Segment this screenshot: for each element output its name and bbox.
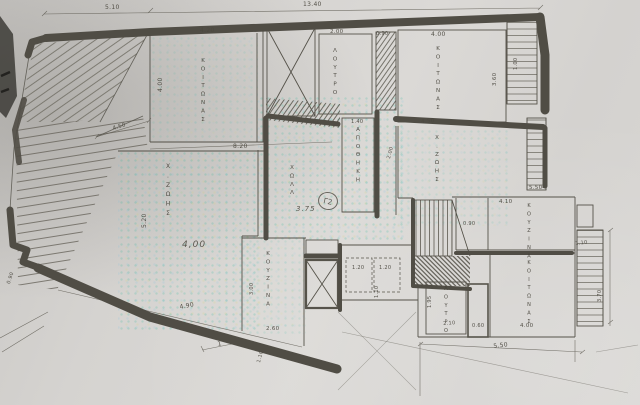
bedroom-1-label: ΚΟΙΤΩΝΑΣ (200, 58, 206, 125)
dimension-label-33: 0.90 (6, 271, 16, 285)
bedroom-2-label: ΚΟΙΤΩΝΑΣ (435, 46, 441, 113)
dimension-label-21: 1.20 (379, 265, 391, 271)
dimension-label-24: 2.10 (443, 320, 456, 327)
kitchen-2-label: ΚΟΥΖΙΝΑ (526, 203, 532, 262)
dimension-label-15: 4,00 (182, 240, 206, 250)
dimension-label-20: 1.20 (352, 265, 364, 271)
dimension-label-32: 5.50 (493, 341, 508, 350)
dimension-label-9: 4.50 (112, 122, 127, 131)
dimension-label-31: 0.90 (463, 221, 475, 227)
bathroom-2-label: ΛΟΥΤΡΟ (443, 286, 449, 336)
dimension-label-6: 4.00 (431, 31, 446, 38)
dimension-label-12: 4.50 (421, 118, 435, 125)
dimension-label-10: 8.20 (233, 143, 248, 150)
storage-label: ΑΠΟΘΗΚΗ (355, 127, 361, 186)
dimension-label-13: 2.00 (386, 146, 395, 159)
dimension-label-23: 1.95 (427, 296, 433, 308)
dimension-label-17: 3.00 (249, 283, 255, 295)
dimension-label-7: 3.60 (492, 73, 498, 86)
dimension-label-30: 3.70 (597, 290, 603, 302)
dimension-label-19: 4.90 (179, 301, 195, 311)
dimension-label-1: 13.40 (303, 1, 322, 8)
dimension-label-35: 1 (217, 340, 222, 348)
dimension-label-11: 1.40 (351, 119, 363, 125)
kitchen-1-label: ΚΟΥΖΙΝΑ (265, 251, 271, 310)
dimension-label-27: 4.10 (499, 199, 512, 205)
living-area-2-label: Χ.ΖΩΗΣ (434, 135, 440, 185)
dimension-label-29: 1.10 (575, 240, 588, 247)
dimension-label-0: 5.10 (105, 4, 120, 11)
bedroom-3-label: ΚΟΙΤΩΝΑΣ (526, 260, 532, 327)
dimension-label-16: 3.75 (296, 205, 316, 213)
dimension-label-26: 4.00 (520, 323, 533, 329)
dimension-label-4: 2.00 (330, 29, 343, 35)
dimension-label-2: 4.20 (200, 27, 215, 34)
apartment-unit-badge: Γ2 (316, 190, 339, 212)
dimension-label-3: 4.00 (157, 77, 164, 92)
dimension-label-5: 0.90 (376, 31, 388, 37)
bathroom-1-label: ΛΟΥΤΡΟ (332, 48, 338, 98)
dimension-label-25: 0.60 (472, 323, 484, 329)
floor-plan-photo: Γ2 ΚΟΙΤΩΝΑΣΛΟΥΤΡΟΚΟΙΤΩΝΑΣΑΠΟΘΗΚΗΧΩΛΛΧ.ΖΩ… (0, 0, 640, 405)
dimension-label-14: 5.20 (141, 213, 148, 228)
dimension-label-34: 1.10 (256, 350, 265, 363)
labels-layer: Γ2 ΚΟΙΤΩΝΑΣΛΟΥΤΡΟΚΟΙΤΩΝΑΣΑΠΟΘΗΚΗΧΩΛΛΧ.ΖΩ… (0, 0, 640, 405)
dimension-label-8: 1.00 (513, 58, 519, 70)
dimension-label-22: 1.10 (374, 286, 380, 298)
living-area-1-label: Χ.ΖΩΗΣ (165, 163, 172, 219)
dimension-label-28: 5.50 (529, 185, 542, 191)
hall-label: ΧΩΛΛ (289, 165, 295, 199)
dimension-label-18: 2.60 (266, 326, 279, 332)
